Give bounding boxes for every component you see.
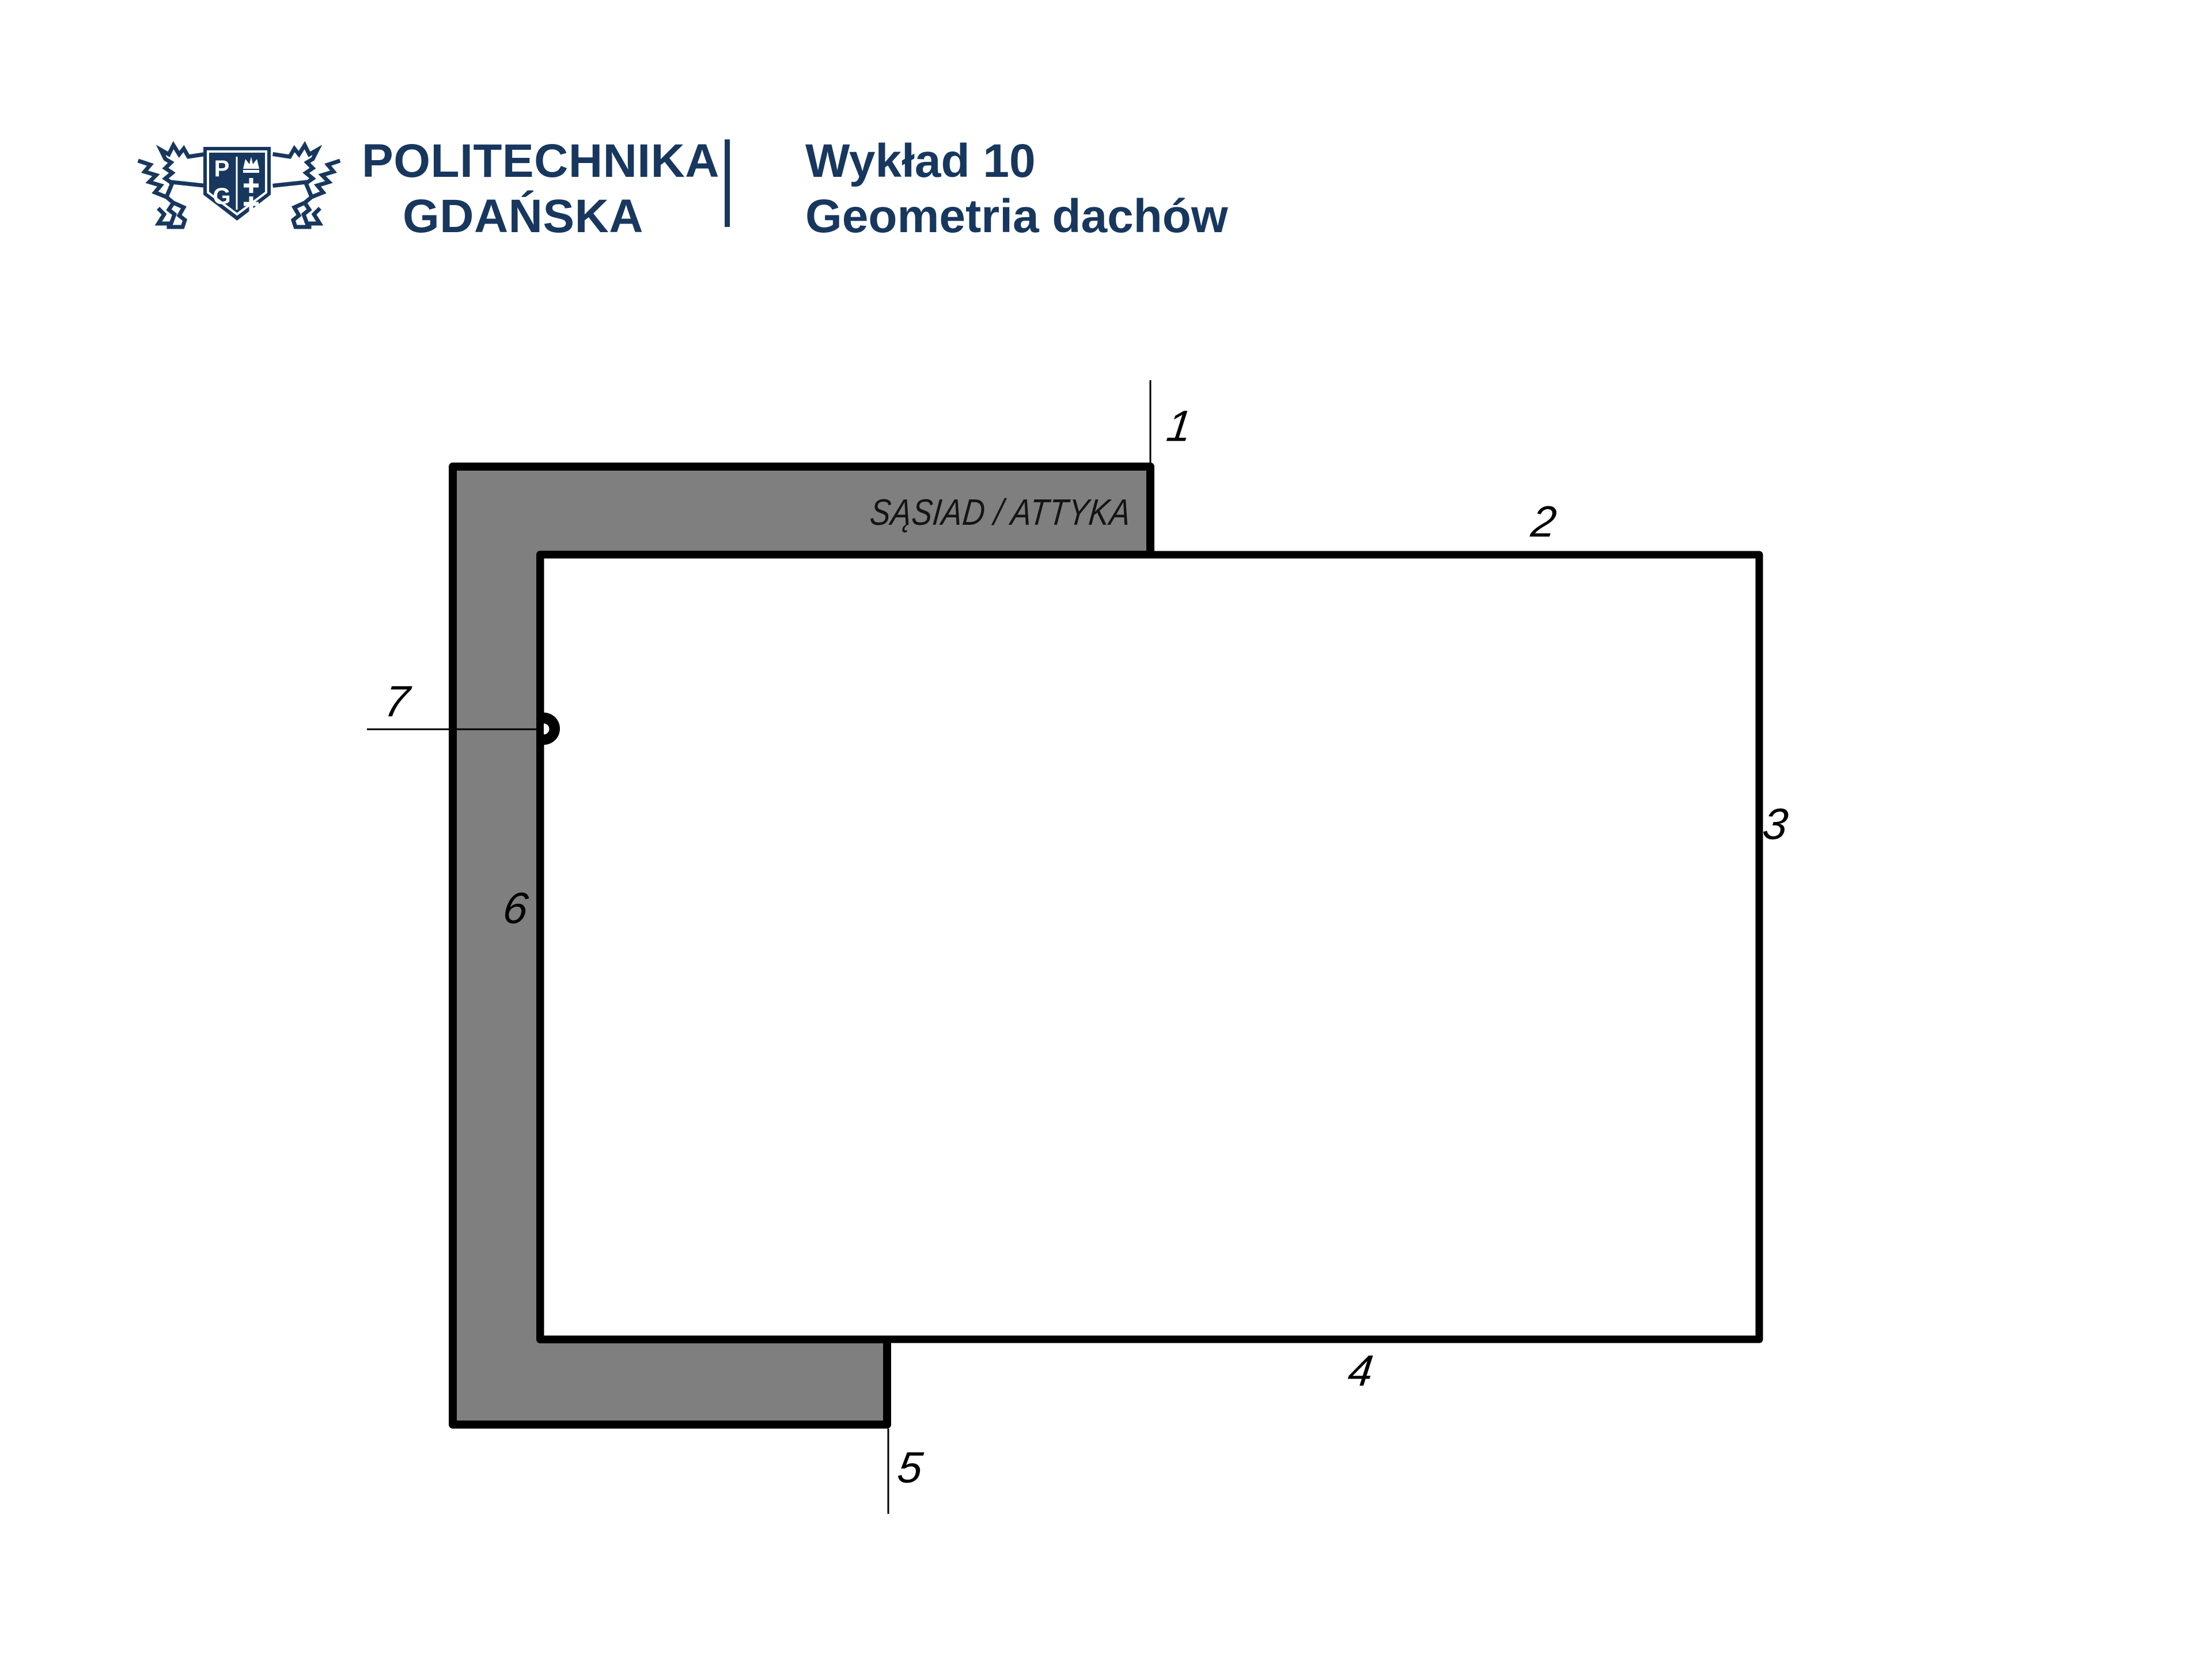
region-label-sasiad-attyka: SĄSIAD / ATTYKA — [868, 491, 1133, 533]
roof-outline — [540, 555, 1759, 1339]
roof-plan-diagram — [0, 0, 2212, 1659]
slide: P G POLITECHNIKA GDAŃSKA Wykład 1 — [0, 0, 2212, 1659]
